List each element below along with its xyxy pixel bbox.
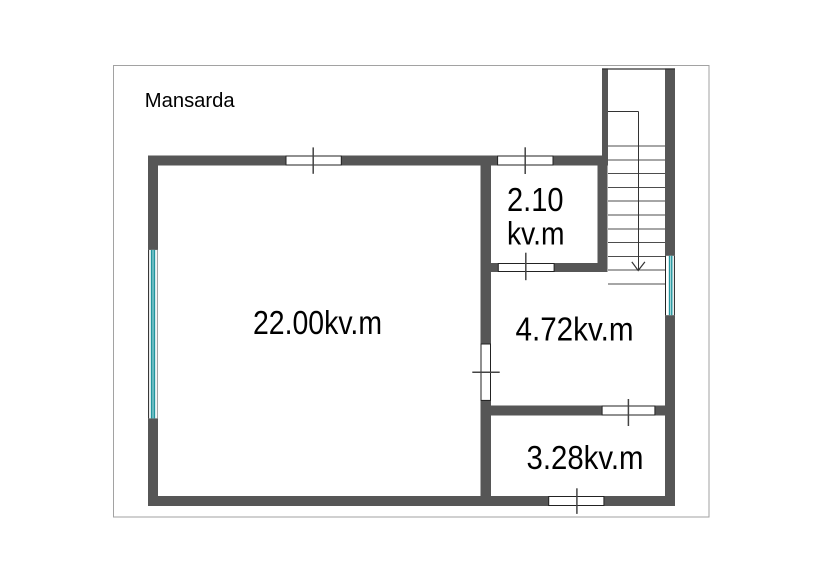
svg-text:3.28kv.m: 3.28kv.m [527, 439, 644, 476]
svg-text:22.00kv.m: 22.00kv.m [253, 304, 382, 341]
svg-text:Mansarda: Mansarda [145, 90, 236, 112]
svg-text:kv.m: kv.m [507, 215, 565, 251]
svg-text:2.10: 2.10 [507, 181, 564, 218]
svg-text:4.72kv.m: 4.72kv.m [516, 311, 634, 348]
